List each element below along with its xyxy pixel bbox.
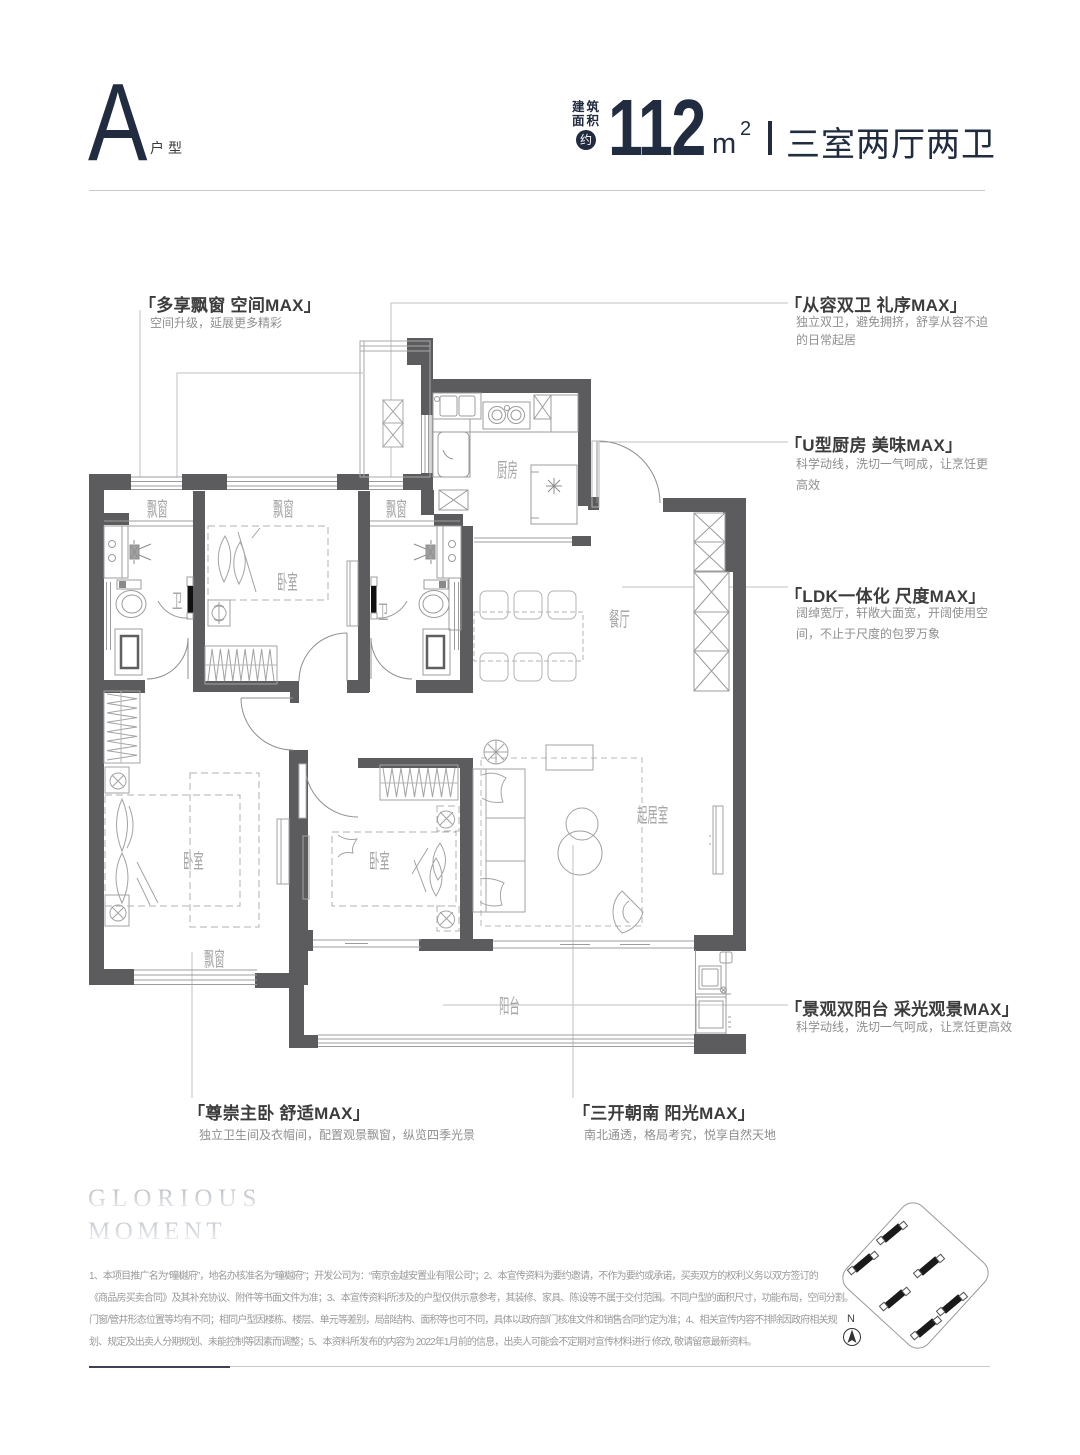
svg-text:餐厅: 餐厅 [609, 608, 630, 631]
svg-text:飘窗: 飘窗 [273, 498, 294, 521]
svg-text:飘窗: 飘窗 [204, 948, 225, 971]
svg-text:卧室: 卧室 [277, 571, 298, 594]
svg-text:飘窗: 飘窗 [386, 498, 407, 521]
svg-text:卧室: 卧室 [369, 850, 390, 873]
svg-text:厨房: 厨房 [497, 459, 518, 482]
svg-text:卧室: 卧室 [183, 850, 204, 873]
svg-text:阳台: 阳台 [499, 995, 520, 1018]
svg-text:飘窗: 飘窗 [147, 498, 168, 521]
svg-text:起居室: 起居室 [637, 804, 668, 827]
svg-text:卫: 卫 [378, 603, 388, 624]
svg-text:N: N [847, 1313, 855, 1325]
svg-text:卫: 卫 [172, 592, 182, 613]
